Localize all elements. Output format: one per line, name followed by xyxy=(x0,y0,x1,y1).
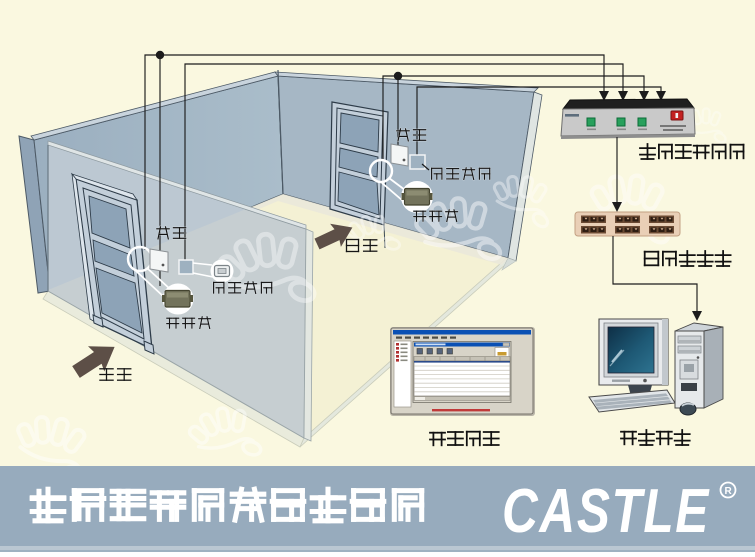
svg-text:R: R xyxy=(725,486,733,497)
svg-text:CASTLE: CASTLE xyxy=(502,476,710,546)
